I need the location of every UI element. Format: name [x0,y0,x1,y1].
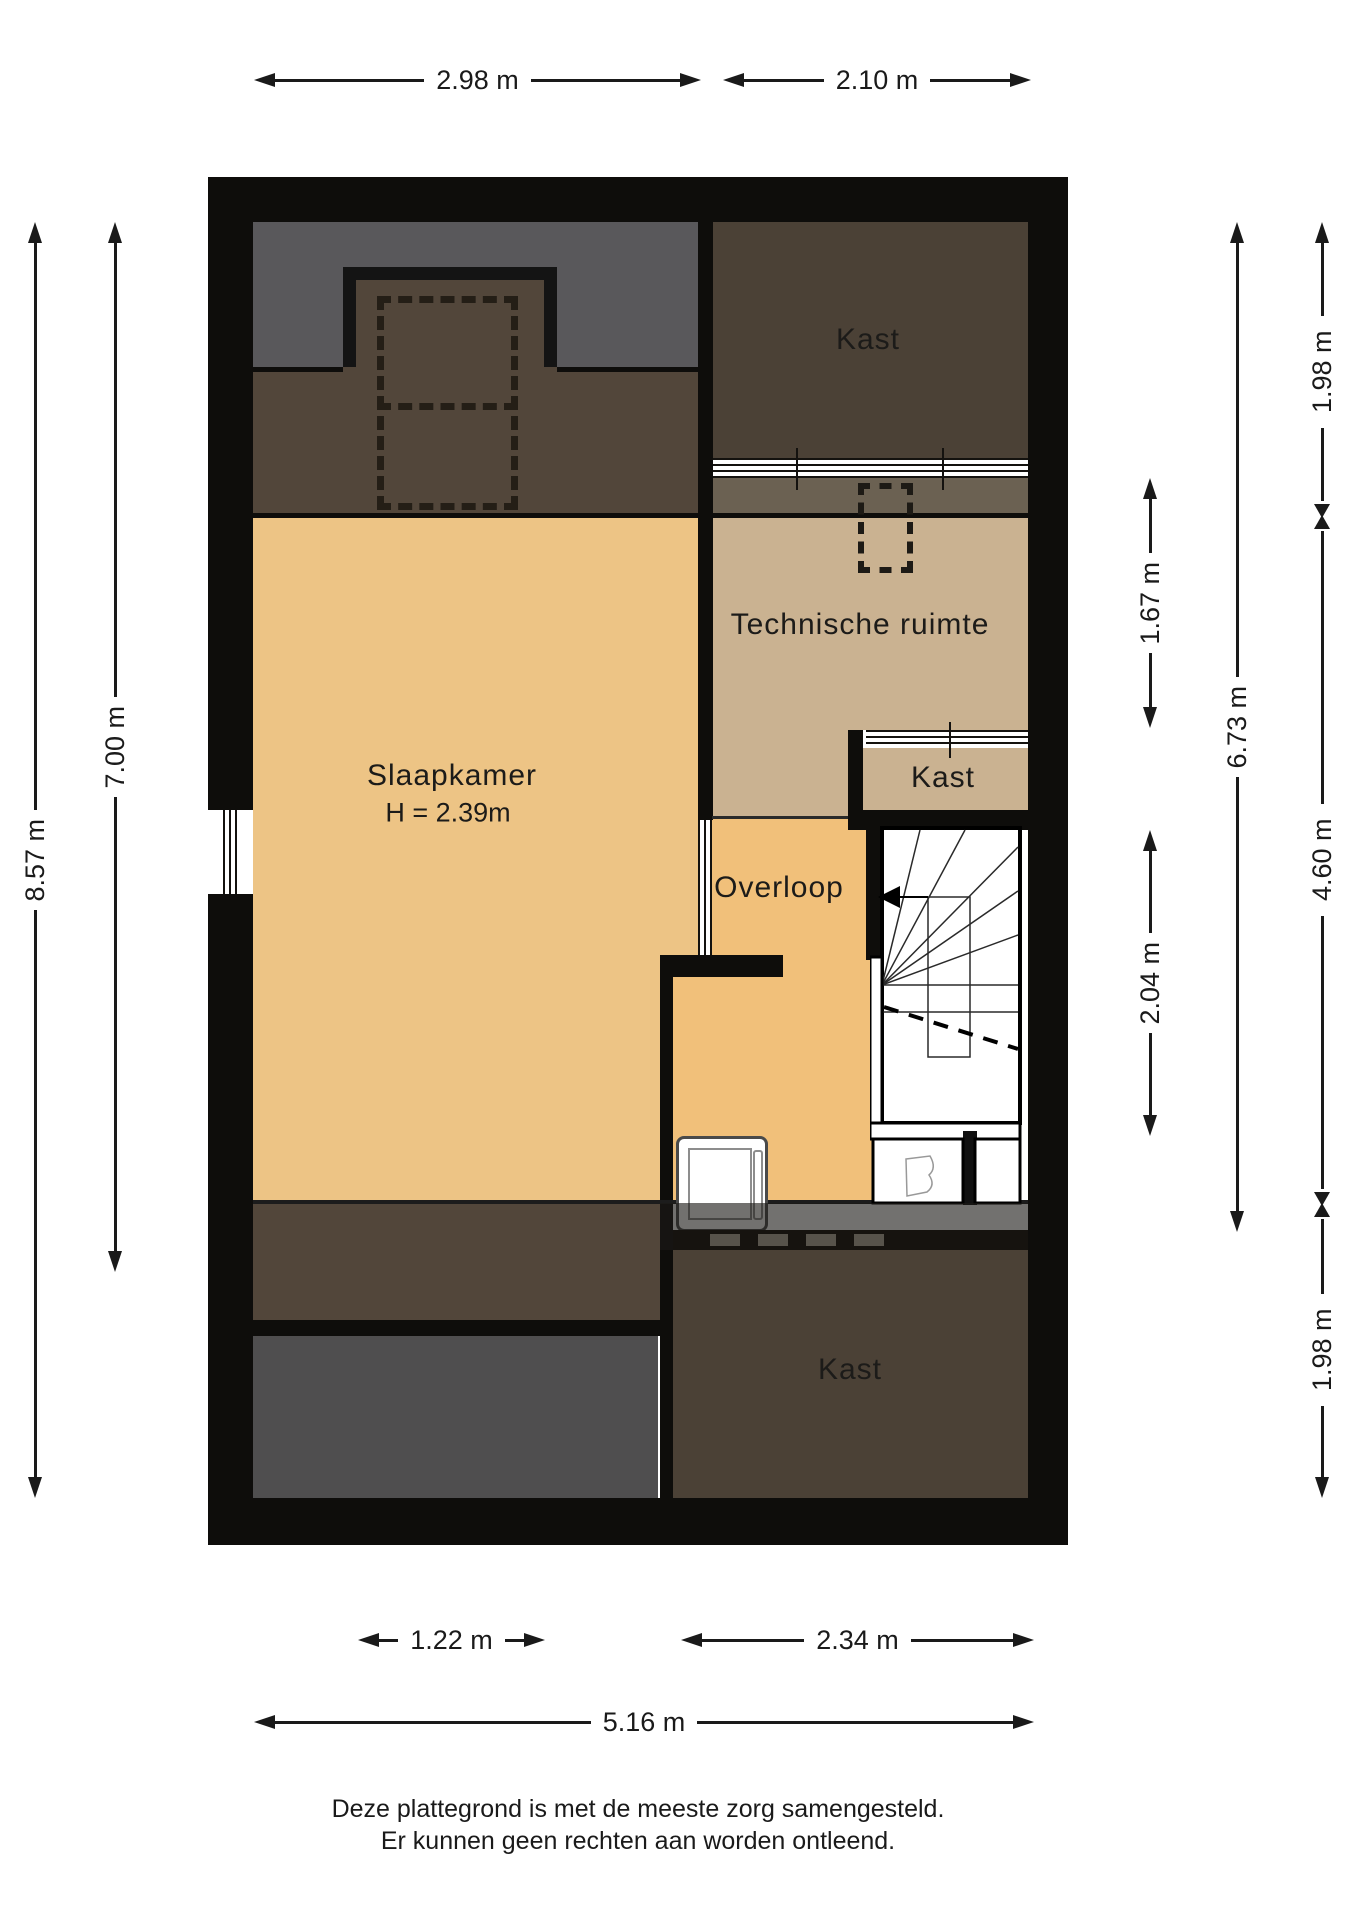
stair-handrail [870,957,882,1137]
dimension-right-stairwell: 2.04 m [1136,830,1164,1136]
label-kast-bottom: Kast [818,1353,882,1387]
bottom-left-roof-void [253,1336,658,1498]
closet-compartment [975,1139,1020,1203]
window-mullion [796,448,798,490]
window-kast-middle [866,730,1028,748]
arrow-right-icon [524,1633,545,1647]
arrow-right-icon [1010,73,1031,87]
landing-strip [870,1123,1020,1139]
wall-top [208,177,1068,222]
dimension-bottom-right: 2.34 m [681,1628,1034,1652]
dimension-top-right: 2.10 m [723,68,1031,92]
floorplan-canvas: Kast Technische ruimte Kast Slaapkamer H… [0,0,1358,1920]
wall-segment [253,1320,660,1336]
window-kast-top [713,458,1028,478]
arrow-down-icon [1143,1115,1157,1136]
skylight-dashed-outline [858,483,913,573]
room-technische-ruimte-lower [713,730,848,818]
wall-left-upper [208,222,253,810]
window-mullion [949,722,951,758]
arrow-down-icon [108,1251,122,1272]
window-frame [223,810,237,894]
dimension-break-icon [1314,501,1330,531]
arrow-up-icon [108,222,122,243]
stairwell [882,828,1020,1123]
room-slaapkamer [253,518,700,1203]
arrow-left-icon [254,73,275,87]
arrow-down-icon [1230,1211,1244,1232]
disclaimer-line-2: Er kunnen geen rechten aan worden ontlee… [208,1827,1068,1856]
arrow-up-icon [1315,222,1329,243]
wardrobe-divider [377,403,518,410]
arrow-left-icon [681,1633,702,1647]
staircase [870,825,1028,1205]
wall-bottom [208,1498,1068,1545]
arrow-right-icon [1013,1633,1034,1647]
arrow-up-icon [1143,478,1157,499]
label-overloop: Overloop [714,871,844,905]
label-slaapkamer-height: H = 2.39m [385,798,510,829]
wall-right [1028,222,1068,1498]
window-mullion [942,448,944,490]
floor-line [712,816,848,819]
wall-segment [253,367,343,372]
wardrobe-dashed-outline [377,296,518,510]
window-overloop [698,820,712,955]
arrow-down-icon [28,1477,42,1498]
wall-jog [660,955,783,977]
dimension-bottom-left: 1.22 m [358,1628,545,1652]
arrow-left-icon [254,1715,275,1729]
dimension-bottom-total: 5.16 m [254,1710,1034,1734]
label-kast-top: Kast [836,323,900,357]
dimension-top-left: 2.98 m [254,68,701,92]
disclaimer-line-1: Deze plattegrond is met de meeste zorg s… [208,1795,1068,1824]
arrow-left-icon [358,1633,379,1647]
kast-bottom-top-wall [673,1230,1028,1250]
dimension-right-technische: 1.67 m [1136,478,1164,728]
dimension-left-inner: 7.00 m [101,222,129,1272]
bottom-low-ceiling-band [253,1203,660,1320]
dimension-left-total: 8.57 m [21,222,49,1498]
arrow-right-icon [680,73,701,87]
sliding-door-dashed [710,1234,890,1246]
arrow-up-icon [28,222,42,243]
arrow-right-icon [1013,1715,1034,1729]
dimension-right-total: 6.73 m [1223,222,1251,1232]
arrow-up-icon [1143,830,1157,851]
arrow-down-icon [1143,707,1157,728]
label-kast-middle: Kast [911,761,975,795]
dimension-right-segments: 1.98 m 4.60 m 1.98 m [1308,222,1336,1498]
label-technische-ruimte: Technische ruimte [731,608,990,642]
arrow-left-icon [723,73,744,87]
wall-segment [557,367,698,372]
arrow-down-icon [1315,1477,1329,1498]
arrow-up-icon [1230,222,1244,243]
window-exterior-left [208,810,253,894]
wall-left-lower [208,894,253,1498]
label-slaapkamer: Slaapkamer [367,759,537,793]
wall-slaapkamer-right [698,222,713,820]
dimension-break-icon [1314,1189,1330,1219]
